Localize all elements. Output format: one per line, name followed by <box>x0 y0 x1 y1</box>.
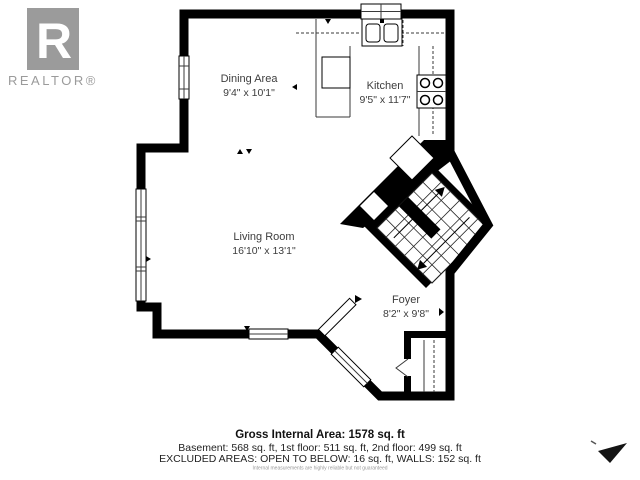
tick-icon <box>325 19 331 24</box>
windows <box>136 4 401 387</box>
tick-icon <box>439 308 444 316</box>
room-dims-foyer: 8'2" x 9'8" <box>383 308 429 320</box>
room-dims-kitchen: 9'5" x 11'7" <box>360 94 411 106</box>
excluded-areas-text: EXCLUDED AREAS: OPEN TO BELOW: 16 sq. ft… <box>159 453 481 465</box>
realtor-logo: R REALTOR® <box>8 8 98 88</box>
realtor-logo-label: REALTOR® <box>8 73 98 88</box>
gross-area-text: Gross Internal Area: 1578 sq. ft <box>235 429 405 441</box>
tick-icon <box>146 256 151 262</box>
tick-icon <box>237 149 243 154</box>
closet-door-icon <box>396 359 408 377</box>
kitchen-window <box>361 4 401 19</box>
kitchen-appliance <box>322 57 350 88</box>
room-dims-dining: 9'4" x 10'1" <box>223 87 275 99</box>
entry-door <box>318 295 362 336</box>
room-label-dining: Dining Area <box>221 73 279 85</box>
dining-window <box>179 56 189 99</box>
tick-icon <box>292 84 297 90</box>
kitchen-fixtures <box>296 16 446 136</box>
realtor-logo-letter: R <box>36 13 72 69</box>
living-room-window <box>136 189 146 301</box>
room-label-foyer: Foyer <box>392 294 420 306</box>
foyer-window <box>331 347 371 387</box>
room-dims-living-room: 16'10" x 13'1" <box>232 245 296 257</box>
north-arrow-icon <box>591 441 627 463</box>
bottom-window <box>249 329 288 339</box>
room-label-kitchen: Kitchen <box>367 80 404 92</box>
kitchen-sink <box>362 16 402 46</box>
door-tick-icon <box>355 295 362 303</box>
stove <box>417 75 446 108</box>
room-label-living-room: Living Room <box>233 231 294 243</box>
area-summary: Gross Internal Area: 1578 sq. ft Basemen… <box>159 429 481 472</box>
tick-icon <box>246 149 252 154</box>
foyer-closet <box>396 331 452 393</box>
floorplan-page: R REALTOR® <box>0 0 640 480</box>
floorplan-svg: R REALTOR® <box>0 0 640 480</box>
disclaimer-text: Internal measurements are highly reliabl… <box>252 466 387 472</box>
